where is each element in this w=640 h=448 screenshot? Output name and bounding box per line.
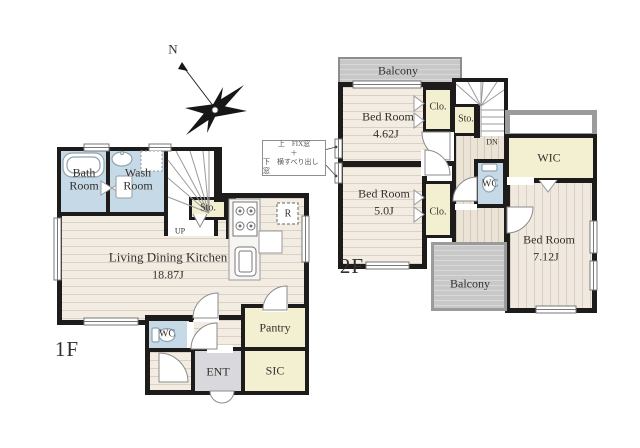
window-markers bbox=[54, 81, 597, 325]
wash-basin-icon bbox=[112, 152, 132, 167]
label-balcony-north: Balcony bbox=[378, 64, 418, 77]
floor-plan-canvas: Bath Room Wash Room Sto. UP Living Dinin… bbox=[0, 0, 640, 448]
label-sto-2f: Sto. bbox=[458, 113, 474, 124]
label-fridge: R bbox=[285, 208, 292, 219]
kitchen-sink-icon bbox=[235, 247, 256, 276]
window-note-line2: ＋ bbox=[291, 149, 298, 158]
window-note-callout: 上 FIX窓 ＋ 下 横すべり出し窓 bbox=[262, 140, 326, 176]
lineart-overlay bbox=[0, 0, 640, 448]
label-floor-2f: 2F bbox=[340, 255, 364, 279]
label-compass-north: N bbox=[168, 43, 177, 58]
window-note-line1: 上 FIX窓 bbox=[278, 140, 310, 149]
island-counter-icon bbox=[259, 231, 282, 253]
stove-icon bbox=[233, 202, 257, 236]
folding-door-markers bbox=[101, 96, 557, 222]
label-sto-1f: Sto. bbox=[200, 202, 216, 213]
label-ldk-size: 18.87J bbox=[152, 268, 184, 281]
label-bed3-size: 7.12J bbox=[533, 250, 559, 263]
label-floor-1f: 1F bbox=[55, 338, 79, 362]
label-wc-2f: WC bbox=[482, 178, 498, 189]
label-wash: Wash Room bbox=[112, 167, 164, 194]
label-bed1: Bed Room bbox=[362, 110, 414, 123]
label-bed1-size: 4.62J bbox=[373, 127, 399, 140]
label-bed2-size: 5.0J bbox=[374, 204, 394, 217]
label-clo2: Clo. bbox=[430, 206, 447, 217]
label-bath: Bath Room bbox=[59, 167, 109, 194]
label-clo1: Clo. bbox=[430, 101, 447, 112]
label-up: UP bbox=[175, 228, 185, 237]
label-wic: WIC bbox=[537, 151, 560, 164]
label-ldk: Living Dining Kitchen bbox=[109, 251, 227, 266]
window-note-line3: 下 横すべり出し窓 bbox=[263, 158, 325, 176]
staircase-1f-lines bbox=[168, 151, 209, 227]
label-balcony-south: Balcony bbox=[450, 277, 490, 290]
label-bed3: Bed Room bbox=[523, 233, 575, 246]
label-ent: ENT bbox=[206, 365, 229, 378]
label-sic: SIC bbox=[266, 364, 285, 377]
label-pantry: Pantry bbox=[259, 321, 290, 334]
label-bed2: Bed Room bbox=[358, 187, 410, 200]
label-wc-1f: WC bbox=[159, 328, 175, 339]
label-dn: DN bbox=[486, 139, 498, 148]
compass-icon bbox=[178, 62, 247, 135]
